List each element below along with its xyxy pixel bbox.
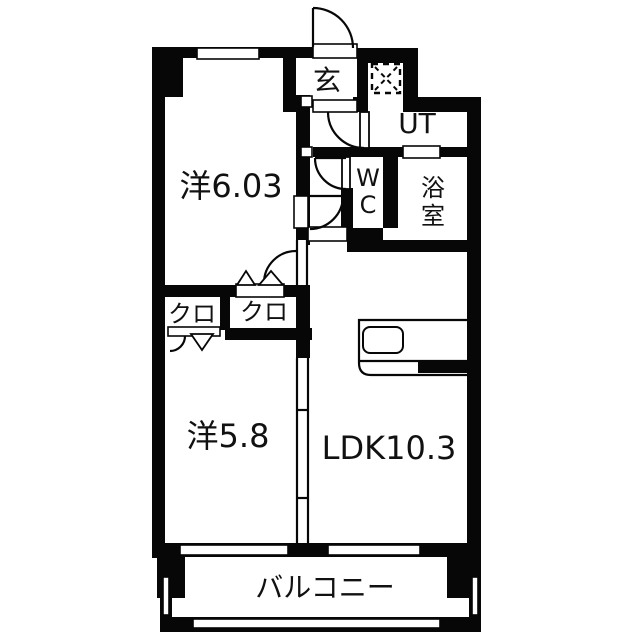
washing-machine-area-symbol <box>372 64 400 93</box>
pillar-top-left <box>152 47 183 97</box>
wc-label-line2: C <box>360 191 377 219</box>
bath-label-line2: 室 <box>421 202 445 230</box>
room1-door-opening <box>294 196 308 228</box>
genkan-label: 玄 <box>313 64 341 97</box>
western-room-5-label: 洋5.8 <box>187 417 270 455</box>
window-bottom-right <box>328 545 420 555</box>
ldk-label: LDK10.3 <box>322 429 457 467</box>
kitchen-sink <box>363 327 403 353</box>
wall-niche-upper <box>301 96 312 107</box>
kitchen-counter <box>359 320 467 375</box>
closet-left-label: クロ <box>168 300 216 328</box>
window-top <box>197 48 259 59</box>
balcony-side-slot-left <box>163 577 169 615</box>
closet-right-label: クロ <box>240 298 288 326</box>
floorplan-drawing: 玄 UT W C 浴 室 洋6.03 クロ クロ 洋5.8 LDK10.3 バル… <box>0 0 640 640</box>
wall-bath-bottom <box>383 240 481 252</box>
genkan-step-edge <box>313 100 357 112</box>
wall-closet-divider <box>220 297 230 330</box>
wc-door-leaf <box>342 157 350 189</box>
room1-ldk-doorway <box>296 240 308 285</box>
balcony-railing-slot <box>193 619 440 628</box>
kitchen-counter-base <box>418 362 467 373</box>
balcony-side-slot-right <box>472 577 478 615</box>
wall-niche-lower <box>301 147 312 157</box>
wall-right-outer <box>467 112 481 558</box>
sliding-partition <box>296 358 309 543</box>
entrance-threshold <box>313 44 357 58</box>
wall-left-outer <box>152 47 165 558</box>
window-bottom-left <box>180 545 288 555</box>
wall-wc-left <box>341 188 353 228</box>
wc-label-line1: W <box>356 164 380 192</box>
balcony-label: バルコニー <box>255 571 394 604</box>
closet-right-opening <box>236 284 284 297</box>
bath-door-opening <box>403 146 440 158</box>
wall-genkan-left <box>283 47 296 112</box>
floorplan-page: 玄 UT W C 浴 室 洋6.03 クロ クロ 洋5.8 LDK10.3 バル… <box>0 0 640 640</box>
ut-door-leaf <box>360 112 369 148</box>
ut-label: UT <box>398 107 436 140</box>
wall-ldk-left-upper <box>296 285 310 358</box>
wall-under-ut <box>313 147 481 157</box>
wall-under-wc <box>347 228 383 252</box>
wall-step-vertical <box>403 63 418 97</box>
bath-label-line1: 浴 <box>421 174 445 202</box>
wall-wc-right <box>383 157 398 228</box>
western-room-6-label: 洋6.03 <box>179 167 282 205</box>
